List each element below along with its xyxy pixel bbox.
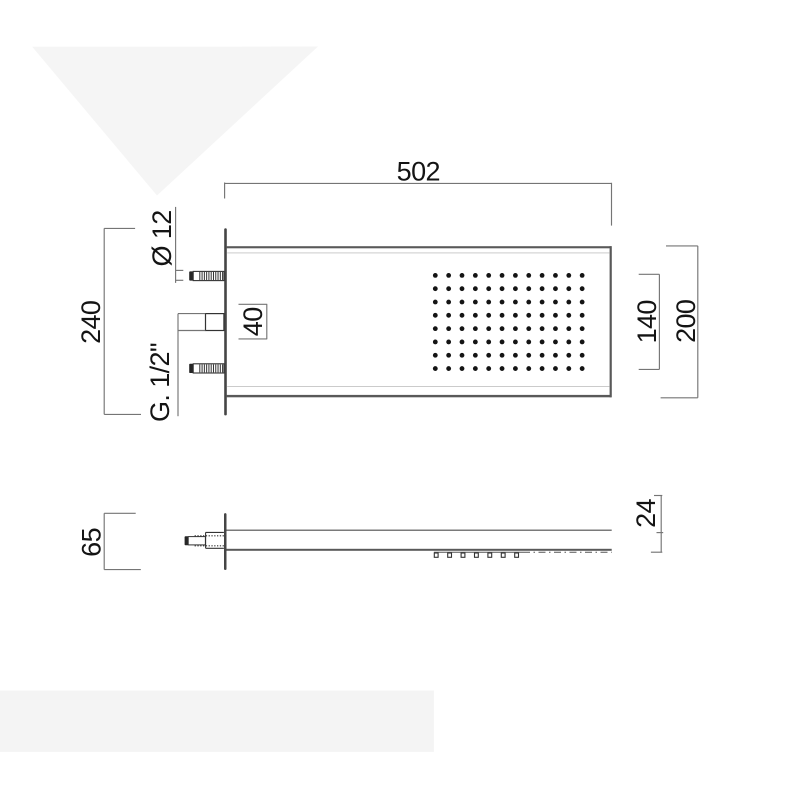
- svg-text:24: 24: [631, 499, 661, 528]
- svg-text:G. 1/2": G. 1/2": [145, 343, 175, 422]
- svg-text:140: 140: [632, 300, 662, 343]
- svg-text:502: 502: [397, 157, 440, 187]
- svg-text:200: 200: [671, 300, 701, 343]
- svg-text:240: 240: [76, 301, 106, 344]
- svg-text:65: 65: [76, 528, 106, 557]
- svg-text:Ø 12: Ø 12: [147, 210, 177, 266]
- svg-text:40: 40: [238, 307, 268, 336]
